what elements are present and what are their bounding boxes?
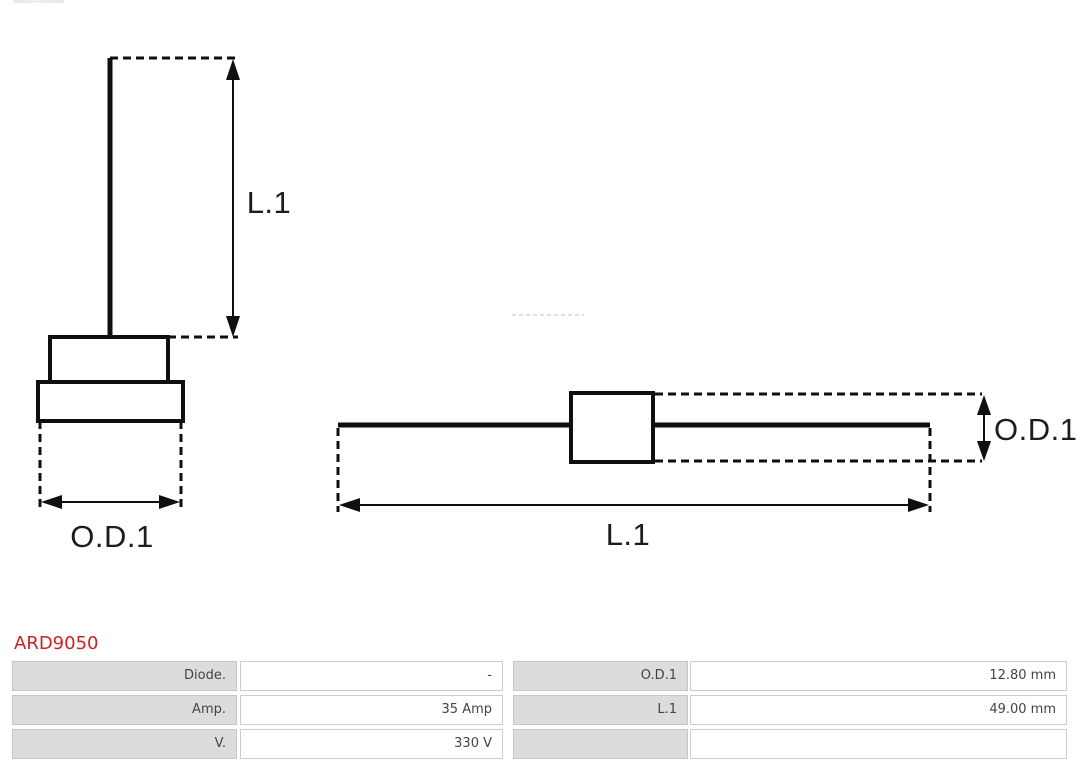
spec-label-cell: Diode. [12,661,237,691]
diagram-side-view: L.1 O.D.1 [338,393,1077,552]
spec-value-cell: 35 Amp [240,695,503,725]
arrowhead-left-icon [339,498,360,512]
arrowhead-right-icon [908,498,929,512]
spec-label-cell [513,729,688,759]
spec-value-cell: 330 V [240,729,503,759]
spec-label-cell: O.D.1 [513,661,688,691]
diode-body-upper-outline [50,337,168,382]
spec-value-cell: - [240,661,503,691]
spec-table: Diode. - O.D.1 12.80 mm Amp. 35 Amp L.1 … [12,661,1067,763]
diameter-dimension-label: O.D.1 [994,412,1077,447]
arrowhead-down-icon [977,441,991,461]
page: L.1 O.D.1 L.1 O.D.1 [0,0,1080,766]
spec-value-cell: 49.00 mm [690,695,1067,725]
spec-label-cell: Amp. [12,695,237,725]
spec-row: Amp. 35 Amp L.1 49.00 mm [12,695,1067,725]
arrowhead-up-icon [977,395,991,415]
watermark-line [512,314,584,316]
spec-row: Diode. - O.D.1 12.80 mm [12,661,1067,691]
spec-row: V. 330 V [12,729,1067,759]
spec-label-cell: V. [12,729,237,759]
spec-label-cell: L.1 [513,695,688,725]
arrowhead-down-icon [226,316,240,337]
diagram-front-view: L.1 O.D.1 [38,58,291,554]
diameter-dimension-label: O.D.1 [70,519,153,554]
product-code: ARD9050 [14,632,99,656]
spec-value-cell [690,729,1067,759]
length-dimension-label: L.1 [606,517,651,552]
diode-body-lower-outline [38,382,183,421]
spec-value-cell: 12.80 mm [690,661,1067,691]
arrowhead-up-icon [226,59,240,80]
arrowhead-right-icon [159,495,180,509]
diode-body-outline [571,393,653,462]
arrowhead-left-icon [41,495,62,509]
length-dimension-label: L.1 [247,185,292,220]
